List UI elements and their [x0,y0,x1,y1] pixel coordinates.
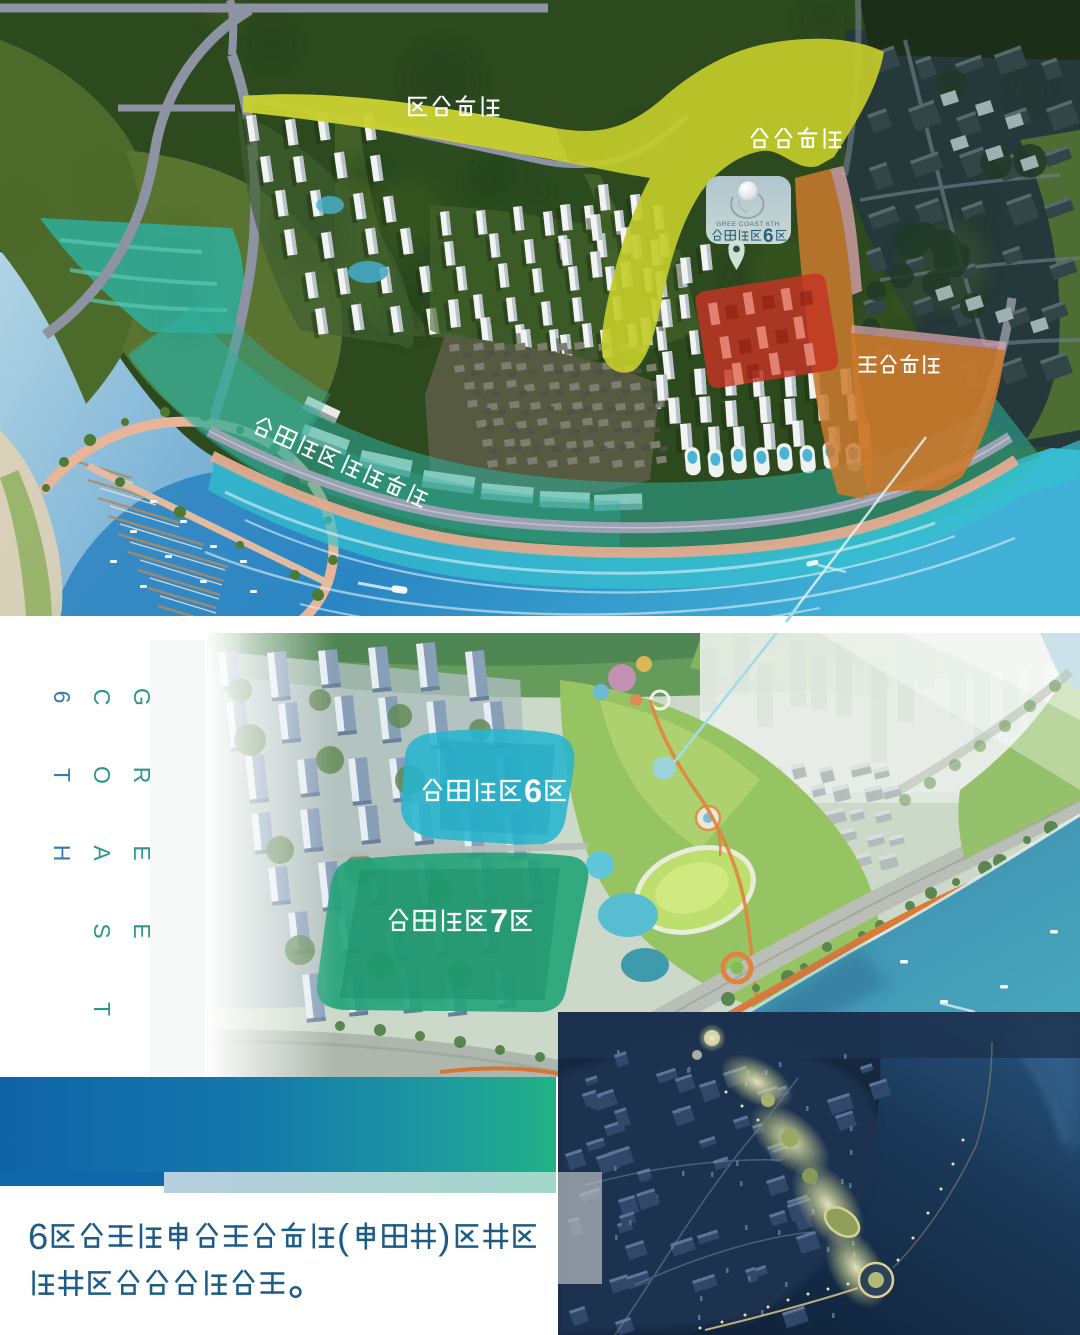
svg-text:O: O [89,766,115,784]
svg-text:7: 7 [490,903,508,939]
svg-text:S: S [89,923,115,938]
svg-text:C: C [89,689,115,706]
svg-text:T: T [89,1002,115,1016]
svg-text:R: R [129,767,155,784]
svg-text:6: 6 [28,1216,48,1257]
svg-text:H: H [49,845,75,862]
svg-text:T: T [49,768,75,782]
svg-text:6: 6 [763,226,774,247]
svg-text:6: 6 [49,691,75,704]
svg-text:E: E [129,923,155,938]
svg-text:E: E [129,845,155,860]
svg-text:6: 6 [524,773,542,809]
svg-text:G: G [129,688,155,706]
svg-text:A: A [89,845,115,861]
svg-text:(: ( [337,1216,349,1257]
svg-text:): ) [438,1216,450,1257]
